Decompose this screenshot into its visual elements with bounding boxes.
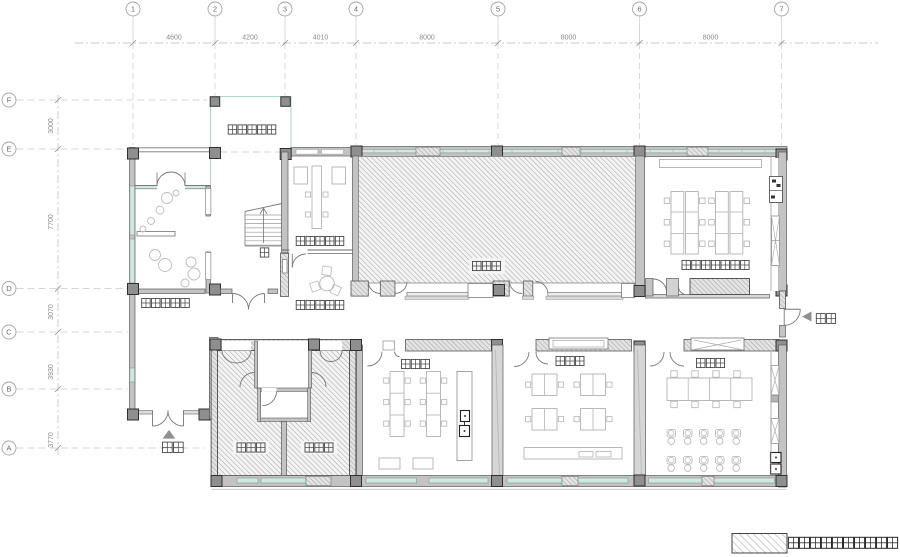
svg-text:3: 3 [283,5,287,14]
svg-text:1: 1 [131,5,135,14]
svg-text:D: D [6,284,12,293]
svg-text:3770: 3770 [48,432,55,448]
svg-text:B: B [6,385,11,394]
svg-text:4600: 4600 [166,35,182,42]
svg-text:8000: 8000 [419,35,435,42]
svg-text:3000: 3000 [48,118,55,134]
svg-text:7: 7 [779,5,783,14]
svg-text:4200: 4200 [242,35,258,42]
svg-text:6: 6 [637,5,641,14]
svg-text:2: 2 [213,5,217,14]
svg-text:8000: 8000 [561,35,577,42]
svg-text:5: 5 [496,5,500,14]
svg-text:3930: 3930 [48,364,55,380]
svg-text:8000: 8000 [703,35,719,42]
svg-text:4010: 4010 [313,35,329,42]
svg-text:A: A [6,444,11,453]
svg-text:F: F [7,96,12,105]
svg-text:4: 4 [354,5,358,14]
svg-text:7700: 7700 [48,214,55,230]
svg-text:E: E [6,145,11,154]
svg-text:C: C [6,328,12,337]
svg-text:3070: 3070 [48,304,55,320]
